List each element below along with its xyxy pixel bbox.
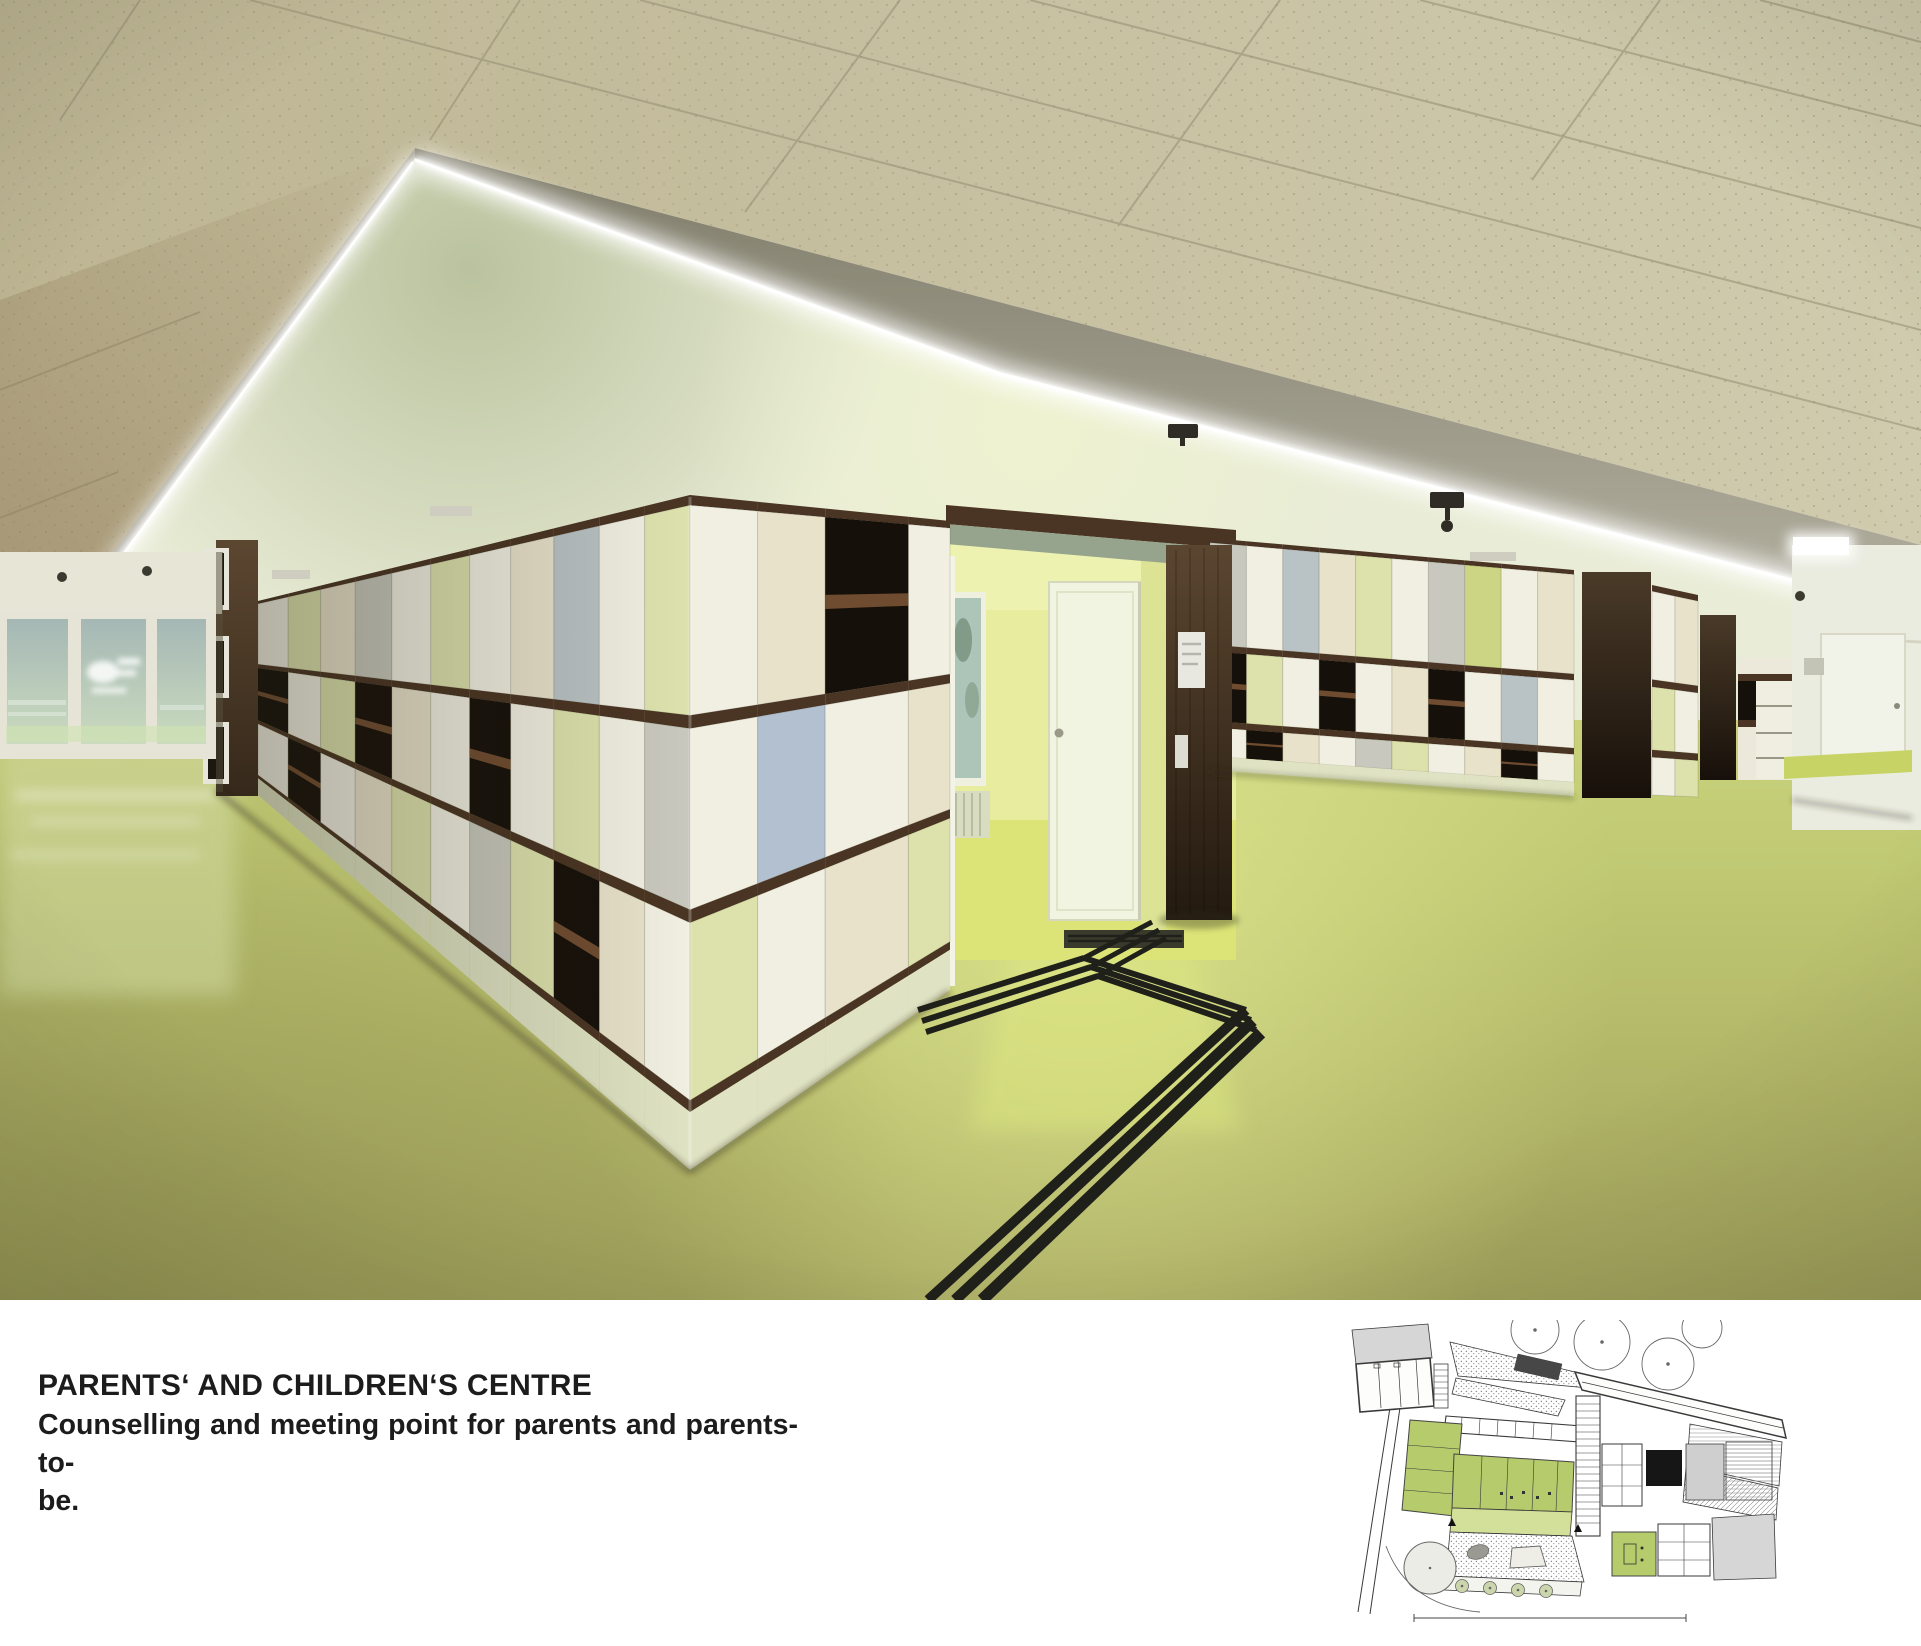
caption-line-1: Counselling and meeting point for parent… — [38, 1406, 798, 1482]
plan-green-block-br — [1612, 1532, 1656, 1576]
plan-stair-core — [1576, 1396, 1600, 1536]
caption-line-2: be. — [38, 1482, 798, 1520]
plan-rooms-topleft — [1356, 1358, 1434, 1412]
plan-green-row-light — [1450, 1508, 1572, 1536]
interior-photo — [0, 0, 1921, 1300]
plan-gray-topleft — [1352, 1324, 1432, 1364]
plan-black-block — [1646, 1450, 1682, 1486]
plan-gray-wedge-br — [1712, 1514, 1776, 1580]
caption-title: PARENTS‘ AND CHILDREN‘S CENTRE — [38, 1366, 798, 1406]
plan-gray-block-1 — [1686, 1444, 1724, 1500]
plan-dimension-line — [1414, 1614, 1686, 1622]
plan-green-wing-h — [1452, 1454, 1574, 1512]
plan-drawing — [1352, 1320, 1786, 1622]
plan-north-rooms — [1444, 1416, 1582, 1442]
site-plan — [1350, 1320, 1795, 1640]
plan-stair-1 — [1434, 1364, 1448, 1408]
plan-play-2 — [1510, 1546, 1546, 1568]
plan-gray-block-2 — [1726, 1442, 1772, 1500]
plan-roof-wedge — [1575, 1372, 1786, 1438]
plan-street-edges — [1358, 1380, 1404, 1614]
caption-block: PARENTS‘ AND CHILDREN‘S CENTRE Counselli… — [38, 1366, 798, 1520]
photo-vignette — [0, 0, 1921, 1300]
